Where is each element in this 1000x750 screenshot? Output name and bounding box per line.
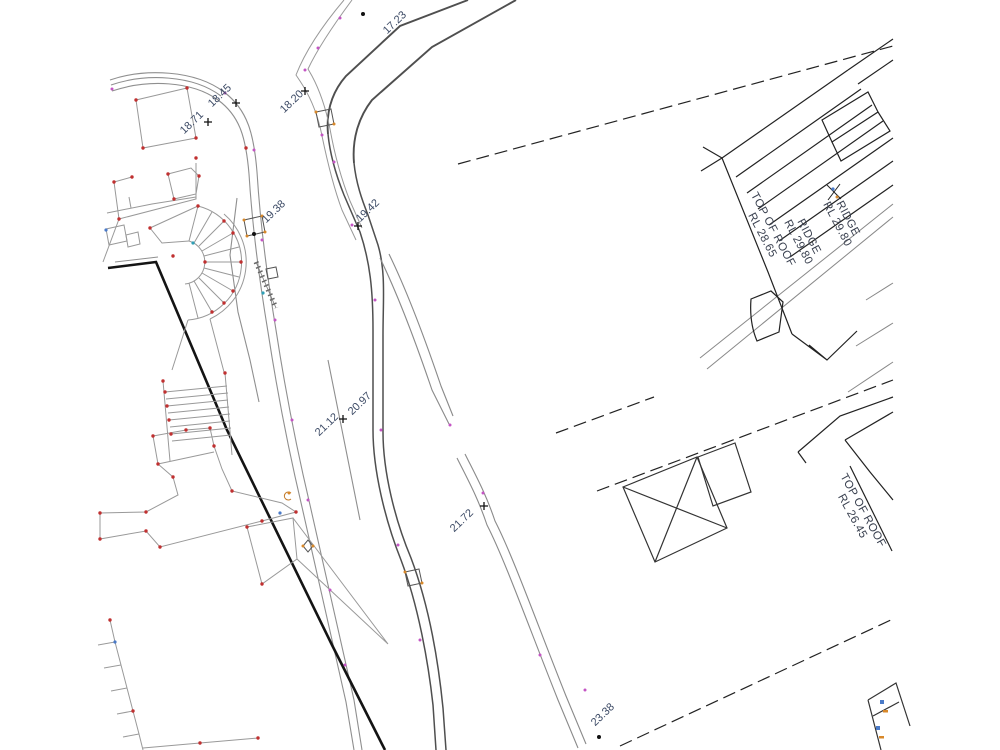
spot-level: 18.45: [206, 82, 240, 110]
spot-level: 19.42: [354, 197, 382, 230]
spot-level: 17.23: [361, 9, 409, 37]
spot-level-label: 19.38: [260, 198, 288, 226]
spot-level-label: 17.23: [381, 9, 409, 37]
spot-level-label: 18.45: [206, 82, 234, 110]
vertex-dots-red: [98, 86, 297, 744]
spot-level-plus-marker: [204, 118, 212, 126]
spot-level-dot-marker: [597, 735, 601, 739]
spot-level-label: 23.38: [589, 701, 617, 729]
labels-layer: 17.2318.2018.4518.7119.3819.4220.9721.12…: [178, 9, 888, 739]
terrace-pentagon: [168, 168, 199, 199]
spot-level-label: 20.97: [346, 390, 374, 418]
pit-corner-dots: [243, 111, 839, 585]
pit: [316, 109, 334, 127]
stepped-wall: [98, 620, 258, 750]
spot-level-dot-marker: [252, 232, 256, 236]
flag-structure: [247, 518, 297, 584]
survey-drawing-canvas: 17.2318.2018.4518.7119.3819.4220.9721.12…: [0, 0, 1000, 750]
spot-level-label: 19.42: [354, 197, 382, 225]
spot-level: 23.38: [589, 701, 617, 739]
spot-level-label: 21.72: [448, 507, 476, 535]
house-north: [701, 39, 893, 360]
building-footprint: [100, 428, 296, 547]
gable: [792, 331, 857, 360]
boundary-line: [108, 257, 385, 750]
roof-level-label: TOP OF ROOFRL 26.45: [827, 472, 888, 555]
roof-level-label: RIDGERL 29.80: [820, 194, 864, 248]
spot-level-label: 18.20: [278, 88, 306, 116]
spot-level-label: 21.12: [313, 411, 341, 439]
survey-plan-viewport: 17.2318.2018.4518.7119.3819.4220.9721.12…: [0, 0, 1000, 750]
footpath-east-upper: [296, 0, 362, 240]
shed-fragment: [868, 683, 910, 750]
curved-stair: [150, 206, 246, 372]
road-kerb-lines: [328, 0, 516, 750]
spot-level: 21.12: [313, 411, 347, 439]
spot-level: 21.72: [448, 502, 488, 535]
spot-level: 20.97: [346, 390, 374, 418]
station-cross: [827, 184, 841, 200]
spot-level: 18.20: [278, 87, 309, 116]
spot-level-dot-marker: [361, 12, 365, 16]
fence-lines: [458, 46, 893, 746]
outbuilding-x: [623, 443, 751, 562]
driveway-east: [380, 254, 586, 748]
footpath-west: [110, 73, 362, 750]
